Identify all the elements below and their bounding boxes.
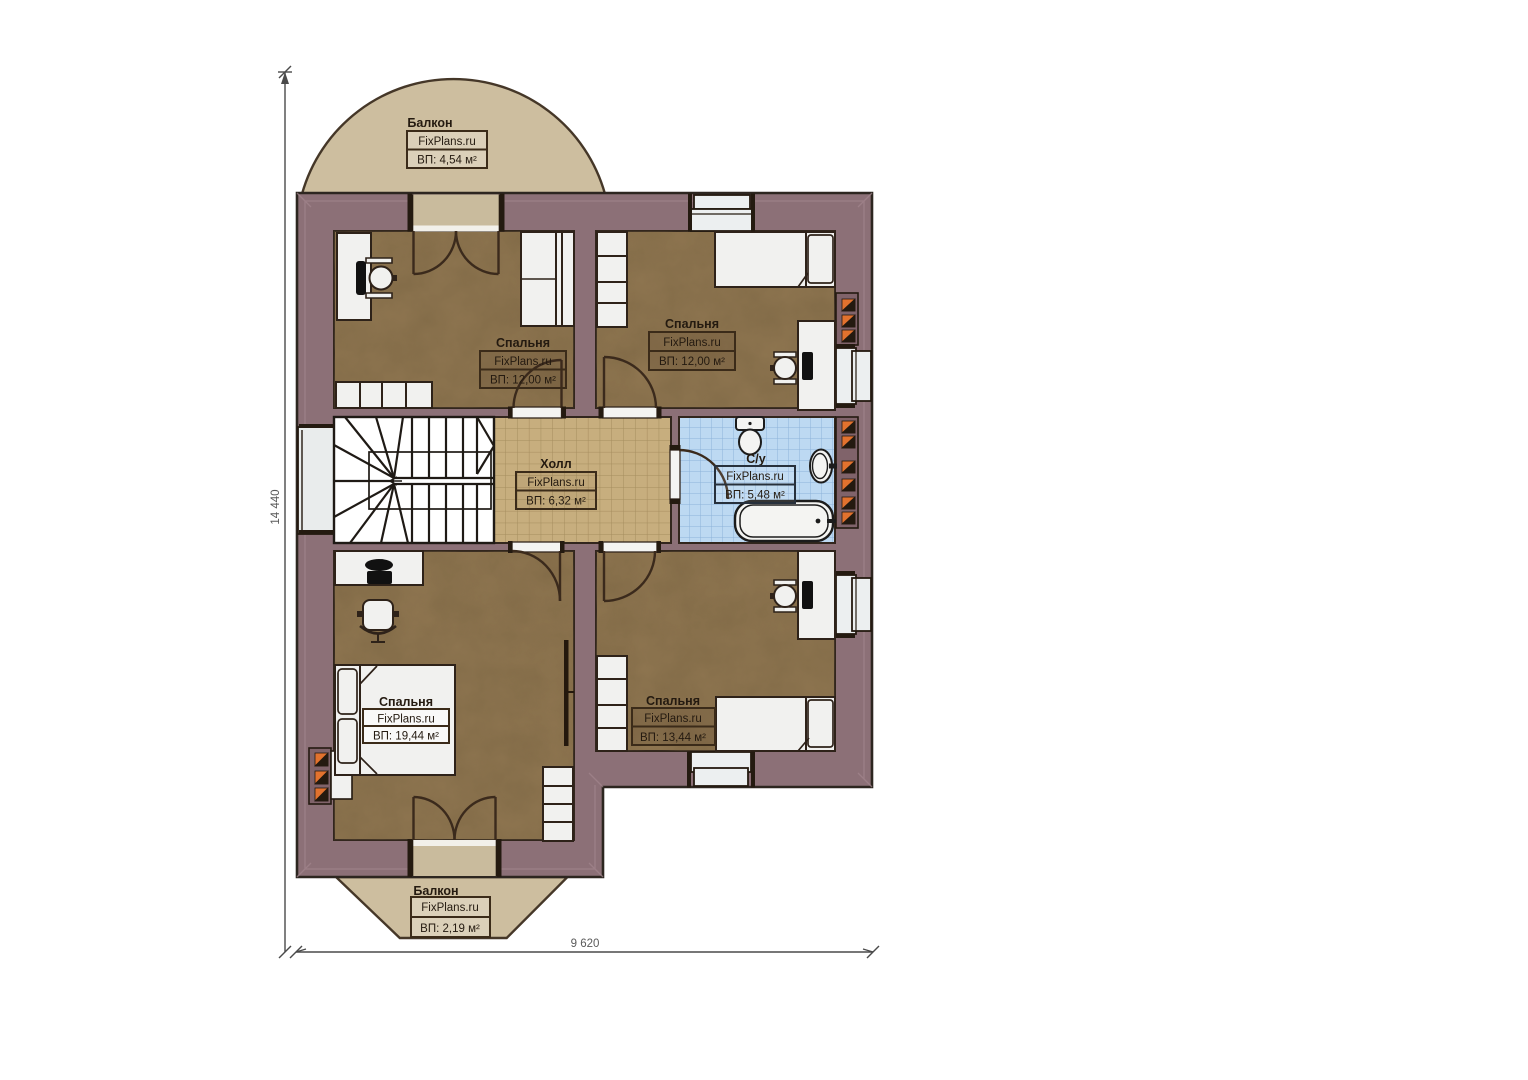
svg-text:ВП: 6,32 м²: ВП: 6,32 м² — [526, 496, 586, 508]
svg-text:Балкон: Балкон — [407, 116, 452, 130]
svg-text:FixPlans.ru: FixPlans.ru — [663, 337, 721, 349]
svg-text:ВП: 4,54 м²: ВП: 4,54 м² — [417, 155, 477, 167]
svg-text:FixPlans.ru: FixPlans.ru — [418, 136, 476, 148]
svg-text:ВП: 19,44 м²: ВП: 19,44 м² — [373, 731, 439, 743]
svg-text:Спальня: Спальня — [496, 336, 550, 350]
svg-text:9 620: 9 620 — [571, 938, 600, 950]
svg-text:Спальня: Спальня — [646, 694, 700, 708]
svg-text:FixPlans.ru: FixPlans.ru — [644, 713, 702, 725]
svg-text:FixPlans.ru: FixPlans.ru — [726, 471, 784, 483]
svg-text:FixPlans.ru: FixPlans.ru — [527, 477, 585, 489]
svg-text:FixPlans.ru: FixPlans.ru — [377, 714, 435, 726]
svg-text:С/у: С/у — [746, 452, 766, 466]
svg-text:Спальня: Спальня — [665, 317, 719, 331]
svg-text:Холл: Холл — [540, 457, 571, 471]
svg-text:Спальня: Спальня — [379, 695, 433, 709]
svg-text:ВП: 12,00 м²: ВП: 12,00 м² — [490, 375, 556, 387]
svg-text:14 440: 14 440 — [270, 489, 282, 524]
svg-text:Балкон: Балкон — [413, 884, 458, 898]
svg-text:FixPlans.ru: FixPlans.ru — [494, 356, 552, 368]
svg-text:ВП: 13,44 м²: ВП: 13,44 м² — [640, 732, 706, 744]
svg-text:FixPlans.ru: FixPlans.ru — [421, 902, 479, 914]
svg-text:ВП: 12,00 м²: ВП: 12,00 м² — [659, 356, 725, 368]
svg-text:ВП: 2,19 м²: ВП: 2,19 м² — [420, 923, 480, 935]
svg-text:ВП: 5,48 м²: ВП: 5,48 м² — [725, 490, 785, 502]
